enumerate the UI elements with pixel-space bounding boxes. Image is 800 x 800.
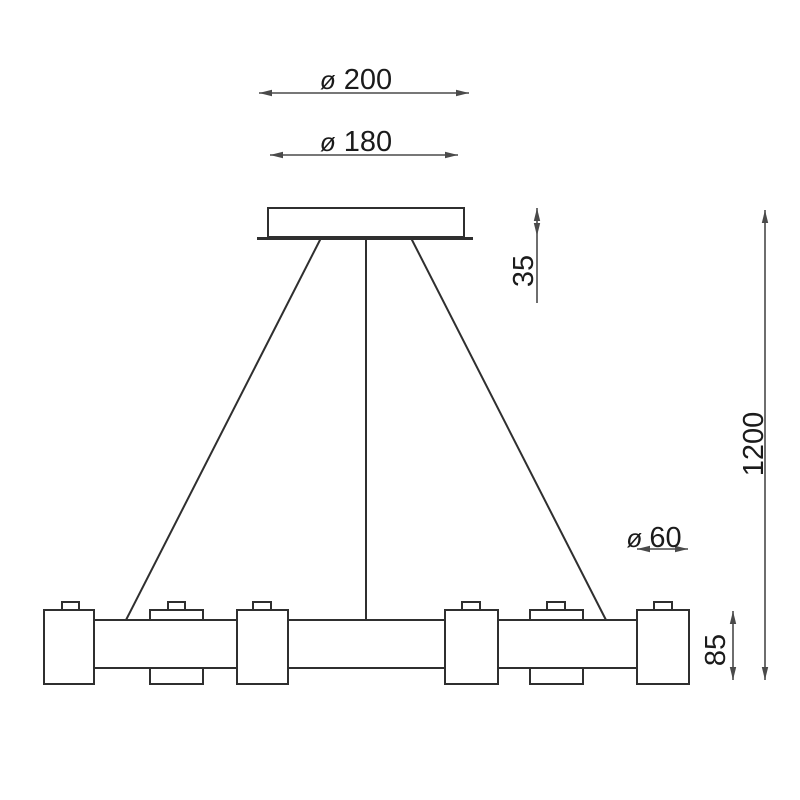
dimension-value: 60 (649, 522, 681, 554)
diameter-symbol: ø (320, 127, 336, 157)
dimension-label-suspension-length: 1200 (738, 412, 770, 477)
shade-cap-1 (62, 602, 79, 610)
diameter-symbol: ø (320, 65, 336, 95)
dimension-value: 200 (344, 64, 392, 96)
suspension-cables (126, 238, 606, 620)
lamp-shade-6 (637, 610, 689, 684)
arrowhead-left-icon (270, 152, 283, 158)
dimension-value: 180 (344, 126, 392, 158)
diameter-symbol: ø (626, 523, 642, 553)
dimension-label-shade-height: 85 (700, 634, 732, 666)
suspension-cable-left (126, 238, 321, 620)
shade-cap-4 (462, 602, 480, 610)
lamp-shade-1 (44, 610, 94, 684)
dimension-canopy-height: 35 (508, 208, 540, 303)
dimension-canopy-diameter: ø180 (270, 126, 458, 158)
arrowhead-down-icon (534, 223, 540, 236)
shade-cap-5 (547, 602, 565, 610)
lamp-shade-4 (445, 610, 498, 684)
suspension-cable-right (411, 238, 606, 620)
dimension-label-canopy-height: 35 (508, 255, 540, 287)
arrowhead-left-icon (259, 90, 272, 96)
lamp-shade-3 (237, 610, 288, 684)
dimension-plate-diameter: ø200 (259, 64, 469, 96)
dimension-label-plate-diameter: ø200 (320, 64, 392, 96)
shade-cap-2 (168, 602, 185, 610)
dimension-shade-height: 85 (700, 611, 736, 680)
arrowhead-right-icon (456, 90, 469, 96)
canopy-body (268, 208, 464, 237)
ring-bar (94, 620, 637, 668)
dimension-shade-diameter: ø60 (626, 522, 688, 554)
technical-drawing-canvas: ø200 ø180 35 1200 ø60 (0, 0, 800, 800)
chandelier-dimension-drawing: ø200 ø180 35 1200 ø60 (0, 0, 800, 800)
dimension-label-shade-diameter: ø60 (626, 522, 681, 554)
canopy (257, 208, 473, 239)
dimension-label-canopy-diameter: ø180 (320, 126, 392, 158)
dimension-suspension-length: 1200 (738, 210, 770, 680)
shade-cap-6 (654, 602, 672, 610)
arrowhead-down-icon (762, 667, 768, 680)
arrowhead-right-icon (445, 152, 458, 158)
arrowhead-up-icon (534, 208, 540, 221)
arrowhead-up-icon (762, 210, 768, 223)
arrowhead-down-icon (730, 667, 736, 680)
arrowhead-up-icon (730, 611, 736, 624)
shade-cap-3 (253, 602, 271, 610)
